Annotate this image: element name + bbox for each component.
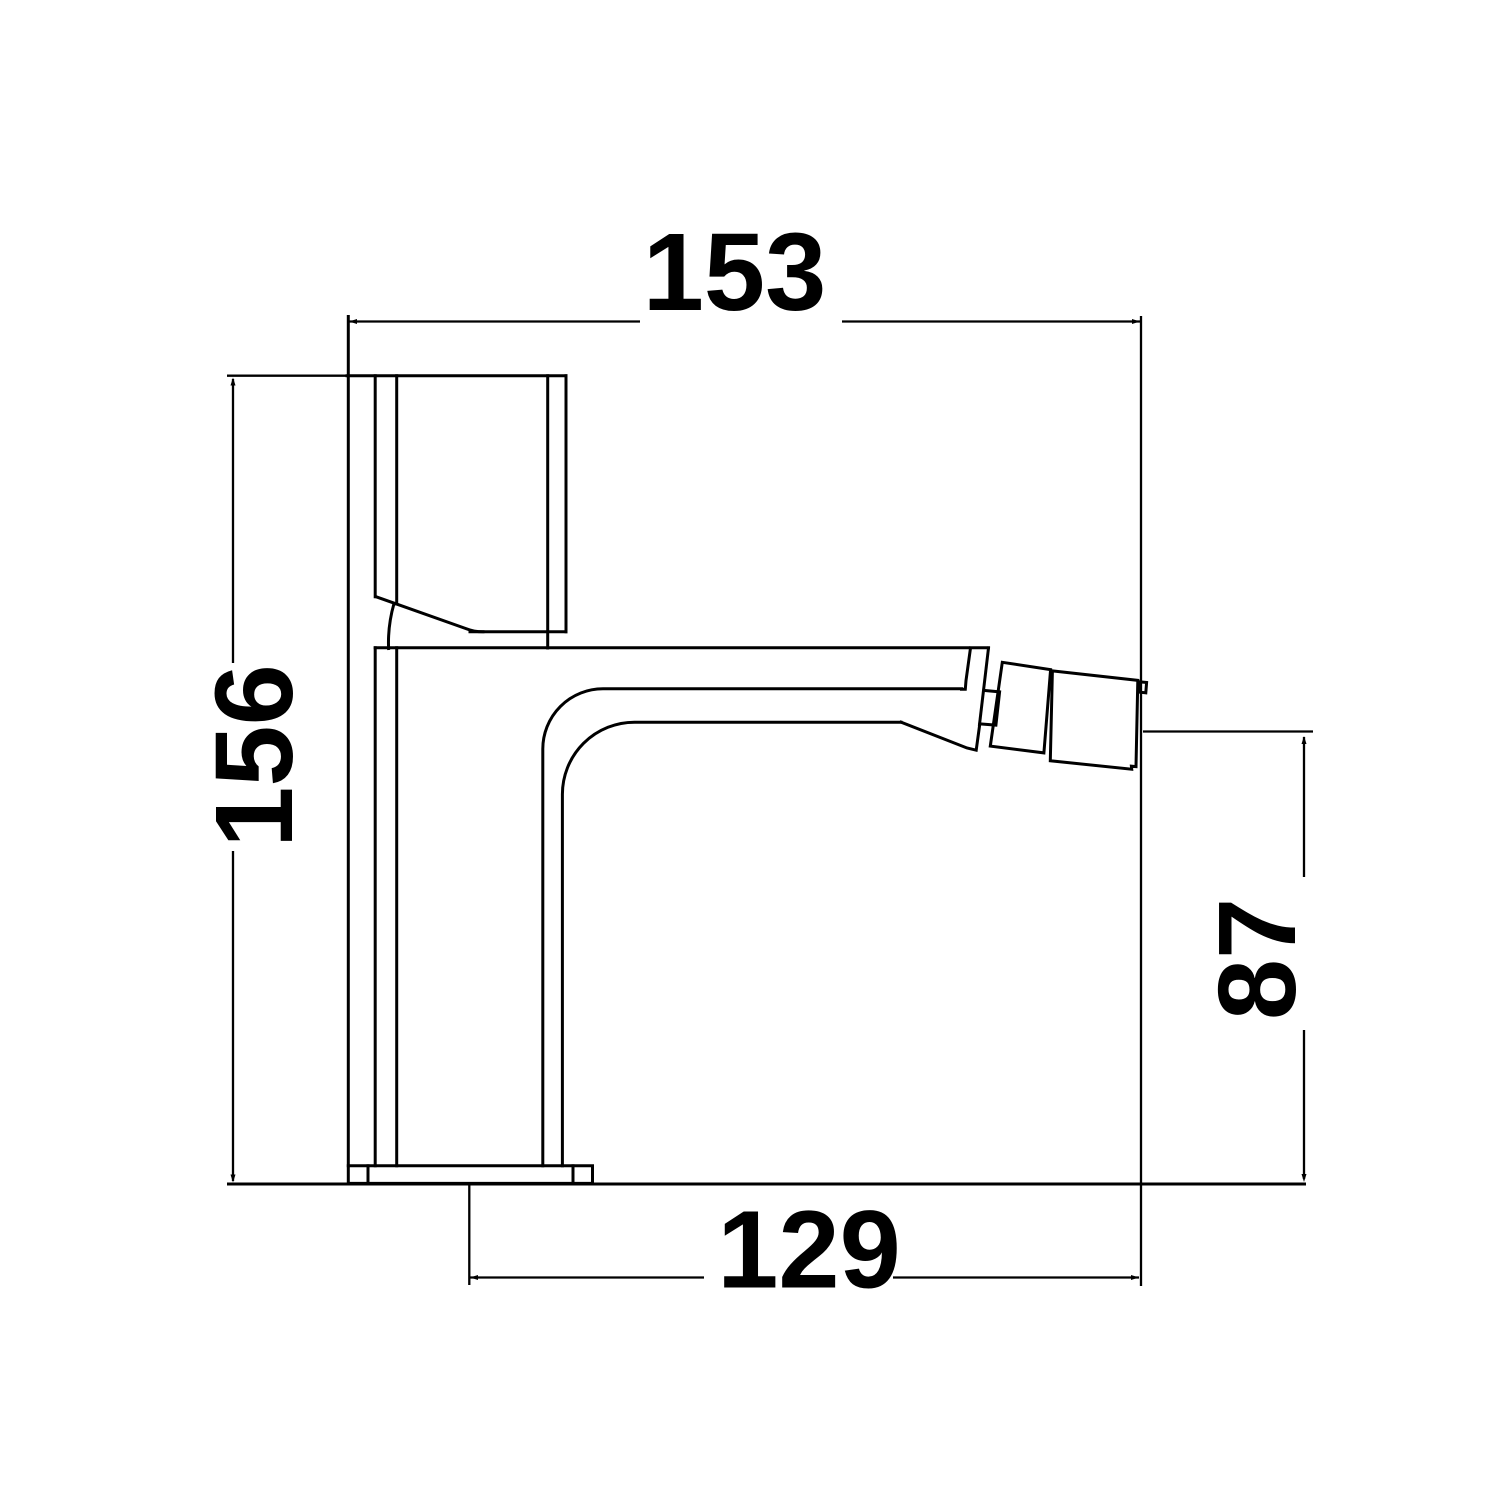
svg-text:87: 87 — [1196, 898, 1319, 1020]
svg-text:156: 156 — [193, 664, 316, 848]
svg-text:129: 129 — [717, 1189, 901, 1312]
svg-text:153: 153 — [643, 211, 827, 334]
